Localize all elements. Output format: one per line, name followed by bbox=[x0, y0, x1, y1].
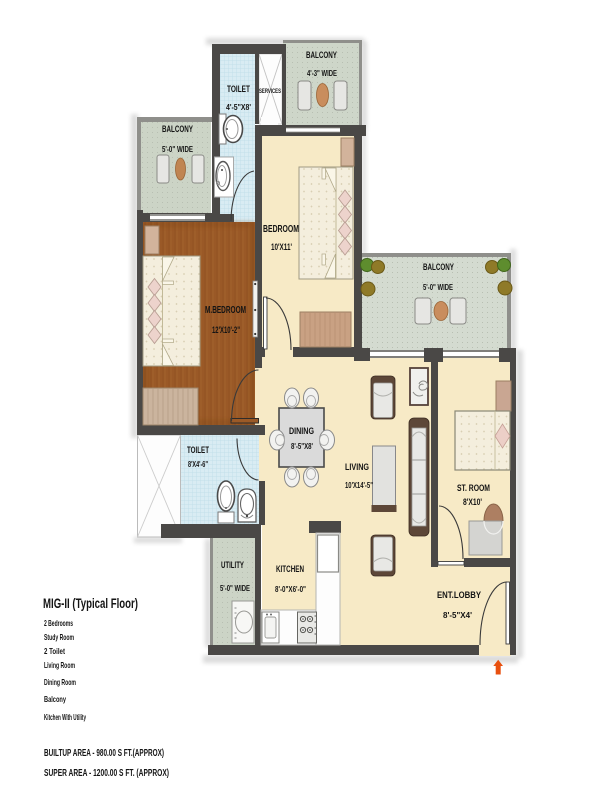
svg-text:8'X10': 8'X10' bbox=[463, 497, 482, 507]
svg-text:4'-3" WIDE: 4'-3" WIDE bbox=[307, 68, 337, 78]
svg-text:Kitchen With Utility: Kitchen With Utility bbox=[44, 712, 86, 722]
svg-text:Study Room: Study Room bbox=[44, 632, 74, 642]
svg-text:BEDROOM: BEDROOM bbox=[263, 224, 299, 235]
svg-text:2 Toilet: 2 Toilet bbox=[44, 646, 65, 656]
svg-text:2 Bedrooms: 2 Bedrooms bbox=[44, 618, 73, 628]
svg-text:Living Room: Living Room bbox=[44, 660, 75, 670]
svg-text:SERVICES: SERVICES bbox=[259, 88, 281, 95]
svg-text:ST. ROOM: ST. ROOM bbox=[457, 483, 490, 494]
svg-text:Dining Room: Dining Room bbox=[44, 677, 76, 687]
svg-text:BALCONY: BALCONY bbox=[306, 50, 337, 61]
svg-text:8'-5"X4': 8'-5"X4' bbox=[443, 610, 472, 620]
svg-text:10'X11': 10'X11' bbox=[271, 242, 292, 252]
svg-text:5'-0" WIDE: 5'-0" WIDE bbox=[220, 583, 250, 593]
svg-text:10'X14'-5": 10'X14'-5" bbox=[345, 480, 373, 490]
svg-text:KITCHEN: KITCHEN bbox=[276, 564, 304, 575]
svg-text:LIVING: LIVING bbox=[345, 462, 369, 473]
svg-text:5'-0" WIDE: 5'-0" WIDE bbox=[423, 282, 453, 292]
svg-text:8'X4'-6": 8'X4'-6" bbox=[188, 459, 208, 469]
svg-text:Balcony: Balcony bbox=[44, 694, 66, 704]
svg-text:5'-0" WIDE: 5'-0" WIDE bbox=[162, 144, 193, 154]
svg-text:8'-0"X6'-0": 8'-0"X6'-0" bbox=[275, 584, 306, 594]
svg-text:TOILET: TOILET bbox=[187, 445, 209, 455]
svg-text:BUILTUP AREA - 980.00 S FT.(AP: BUILTUP AREA - 980.00 S FT.(APPROX) bbox=[44, 748, 164, 759]
svg-text:BALCONY: BALCONY bbox=[423, 262, 454, 273]
svg-text:MIG-II (Typical Floor): MIG-II (Typical Floor) bbox=[43, 595, 138, 611]
svg-text:BALCONY: BALCONY bbox=[162, 124, 193, 135]
svg-text:SUPER AREA - 1200.00 S FT. (AP: SUPER AREA - 1200.00 S FT. (APPROX) bbox=[44, 768, 169, 779]
svg-text:DINING: DINING bbox=[289, 426, 314, 437]
svg-text:8'-5"X8': 8'-5"X8' bbox=[291, 441, 313, 451]
svg-text:12'X10'-2": 12'X10'-2" bbox=[212, 325, 240, 335]
svg-text:TOILET: TOILET bbox=[227, 84, 250, 94]
svg-text:ENT.LOBBY: ENT.LOBBY bbox=[437, 590, 482, 601]
svg-text:UTILITY: UTILITY bbox=[221, 560, 244, 570]
svg-text:M.BEDROOM: M.BEDROOM bbox=[205, 305, 246, 316]
svg-text:4'-5"X8': 4'-5"X8' bbox=[226, 102, 251, 112]
